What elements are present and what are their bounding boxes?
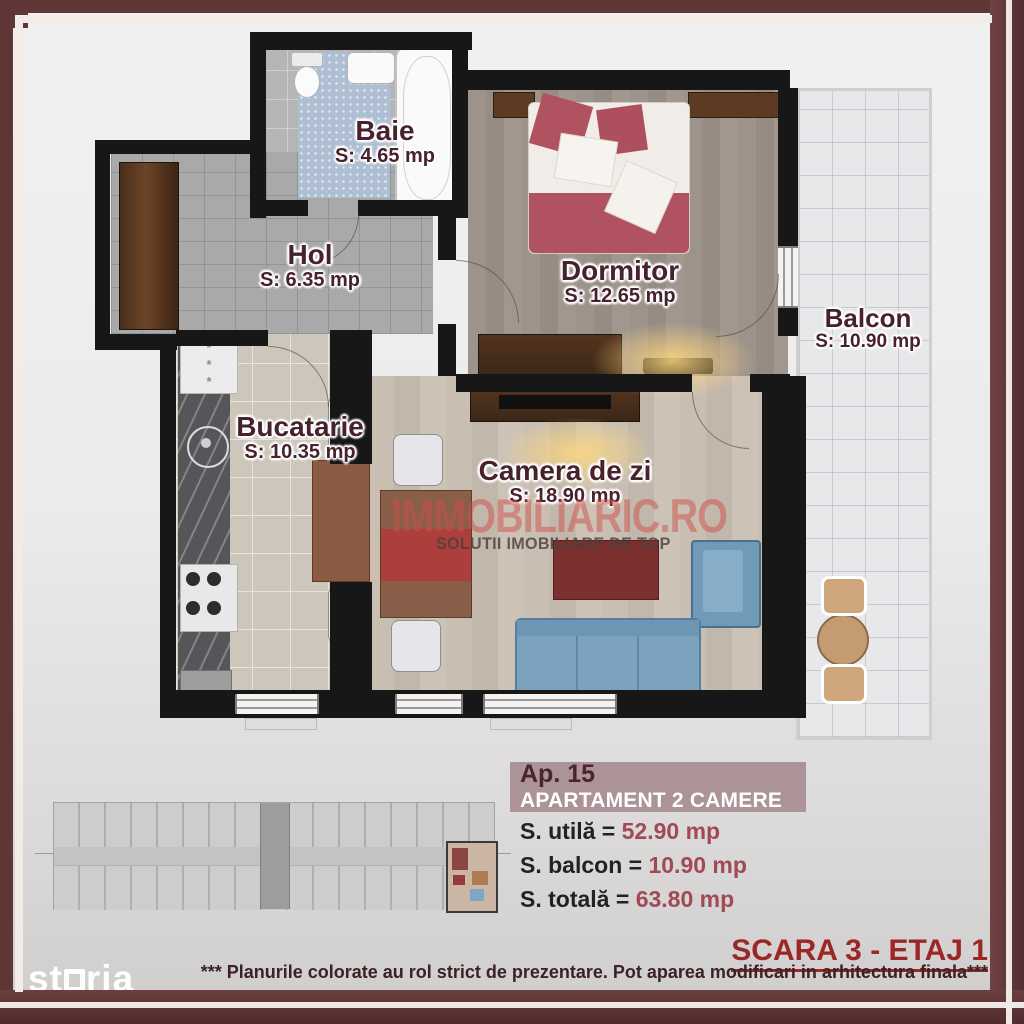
wall bbox=[438, 324, 456, 376]
area-value: 10.90 mp bbox=[648, 852, 746, 878]
sofa bbox=[515, 618, 701, 698]
wall bbox=[762, 376, 806, 718]
apartment-number: Ap. 15 bbox=[520, 760, 595, 789]
armchair bbox=[691, 540, 761, 628]
sofa-back bbox=[517, 620, 699, 636]
kitchen-table bbox=[312, 460, 370, 582]
highlight-bedroom bbox=[452, 848, 468, 870]
highlight-kitchen bbox=[453, 875, 465, 885]
label-hol: Hol S: 6.35 mp bbox=[230, 240, 390, 292]
label-balcon: Balcon S: 10.90 mp bbox=[783, 304, 953, 353]
room-name: Baie bbox=[295, 116, 475, 146]
wall bbox=[468, 70, 790, 90]
nightstand-right bbox=[688, 92, 780, 118]
building-overview-plan bbox=[45, 792, 501, 922]
room-name: Hol bbox=[230, 240, 390, 270]
window-sill bbox=[490, 718, 572, 730]
livingroom-window-1 bbox=[395, 694, 463, 714]
room-area: S: 10.35 mp bbox=[195, 442, 405, 464]
apartment-type: APARTAMENT 2 CAMERE bbox=[520, 789, 782, 813]
label-bucatarie: Bucatarie S: 10.35 mp bbox=[195, 412, 405, 464]
area-utila-line: S. utilă = 52.90 mp bbox=[520, 818, 720, 845]
disclaimer-text: *** Planurile colorate au rol strict de … bbox=[201, 962, 988, 983]
fridge: *** bbox=[180, 338, 238, 394]
stove bbox=[180, 564, 238, 632]
building-outline bbox=[53, 802, 495, 910]
room-name: Camera de zi bbox=[445, 456, 685, 486]
area-value: 52.90 mp bbox=[622, 818, 720, 844]
area-label: S. totală = bbox=[520, 886, 636, 912]
window-sill bbox=[245, 718, 317, 730]
hallway-wardrobe bbox=[119, 162, 179, 330]
bathroom-sink bbox=[347, 52, 395, 84]
watermark-tagline: SOLUTII IMOBILIARE DE TOP bbox=[436, 534, 655, 554]
wall bbox=[330, 330, 372, 346]
wall bbox=[778, 88, 798, 246]
area-totala-line: S. totală = 63.80 mp bbox=[520, 886, 734, 913]
label-baie: Baie S: 4.65 mp bbox=[295, 116, 475, 168]
wall bbox=[176, 330, 268, 346]
logo-square-o-icon bbox=[64, 969, 85, 992]
balcony-chair-bottom bbox=[821, 664, 867, 704]
burner bbox=[186, 601, 200, 615]
room-name: Bucatarie bbox=[195, 412, 405, 442]
frame-bottom-stripe bbox=[0, 1002, 1024, 1008]
wall bbox=[438, 214, 456, 260]
livingroom-window-2 bbox=[483, 694, 617, 714]
wall bbox=[95, 140, 110, 350]
balcony-chair-top bbox=[821, 576, 867, 616]
room-area: S: 12.65 mp bbox=[520, 286, 720, 308]
stair-core bbox=[260, 803, 290, 909]
burner bbox=[207, 572, 221, 586]
room-name: Balcon bbox=[783, 304, 953, 332]
area-value: 63.80 mp bbox=[636, 886, 734, 912]
wall bbox=[456, 374, 692, 392]
toilet-bowl bbox=[294, 66, 320, 98]
area-label: S. utilă = bbox=[520, 818, 622, 844]
frame-stripe-vertical bbox=[15, 15, 23, 992]
area-balcon-line: S. balcon = 10.90 mp bbox=[520, 852, 747, 879]
room-area: S: 10.90 mp bbox=[783, 332, 953, 353]
frame-left bbox=[0, 0, 13, 1024]
bedroom-balcony-window bbox=[778, 246, 798, 308]
burner bbox=[207, 601, 221, 615]
toilet-tank bbox=[291, 52, 323, 67]
bed-pillow-white-1 bbox=[554, 133, 618, 188]
kitchen-window bbox=[235, 694, 319, 714]
area-label: S. balcon = bbox=[520, 852, 648, 878]
armchair-cushion bbox=[703, 550, 743, 612]
room-name: Dormitor bbox=[520, 256, 720, 286]
floor-plan-poster: *** bbox=[0, 0, 1024, 1024]
frame-top bbox=[0, 0, 1024, 13]
frame-stripe-horizontal bbox=[15, 15, 992, 23]
wall bbox=[250, 32, 472, 50]
highlight-sofa bbox=[470, 889, 484, 901]
wall bbox=[330, 582, 372, 690]
label-dormitor: Dormitor S: 12.65 mp bbox=[520, 256, 720, 308]
frame-right-stripe bbox=[1006, 0, 1012, 1024]
dining-chair-bottom bbox=[391, 620, 441, 672]
wall bbox=[250, 32, 266, 218]
wall bbox=[250, 200, 308, 216]
burner bbox=[186, 572, 200, 586]
wall bbox=[95, 140, 252, 154]
highlight-table bbox=[472, 871, 488, 885]
wall bbox=[160, 334, 176, 706]
room-area: S: 4.65 mp bbox=[295, 146, 475, 168]
highlighted-apartment bbox=[446, 841, 498, 913]
sofa-seam bbox=[576, 636, 578, 692]
wall bbox=[750, 374, 790, 392]
apartment-floor-plan: *** bbox=[95, 28, 935, 728]
room-area: S: 6.35 mp bbox=[230, 270, 390, 292]
balcony-table bbox=[817, 614, 869, 666]
sofa-seam bbox=[637, 636, 639, 692]
double-bed bbox=[528, 102, 690, 254]
